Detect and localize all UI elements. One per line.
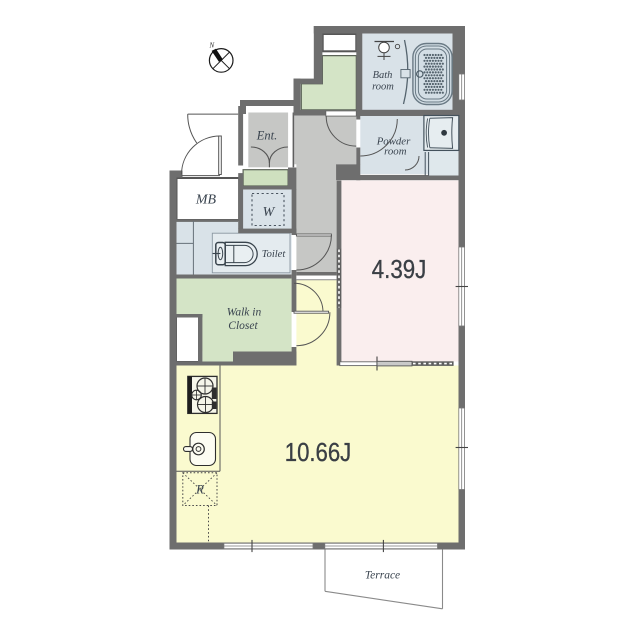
svg-text:Ent.: Ent.	[256, 129, 277, 143]
svg-text:Terrace: Terrace	[365, 570, 400, 582]
svg-text:R: R	[195, 483, 204, 497]
svg-text:Toilet: Toilet	[262, 249, 287, 260]
svg-text:Closet: Closet	[228, 320, 258, 332]
svg-text:room: room	[384, 146, 407, 158]
svg-text:room: room	[372, 82, 394, 93]
svg-text:W: W	[263, 205, 276, 220]
svg-text:10.66J: 10.66J	[285, 437, 352, 467]
svg-text:MB: MB	[195, 193, 217, 208]
svg-text:Walk in: Walk in	[227, 307, 262, 319]
svg-text:4.39J: 4.39J	[372, 254, 427, 284]
svg-text:N: N	[209, 42, 215, 50]
svg-text:Bath: Bath	[373, 70, 393, 81]
